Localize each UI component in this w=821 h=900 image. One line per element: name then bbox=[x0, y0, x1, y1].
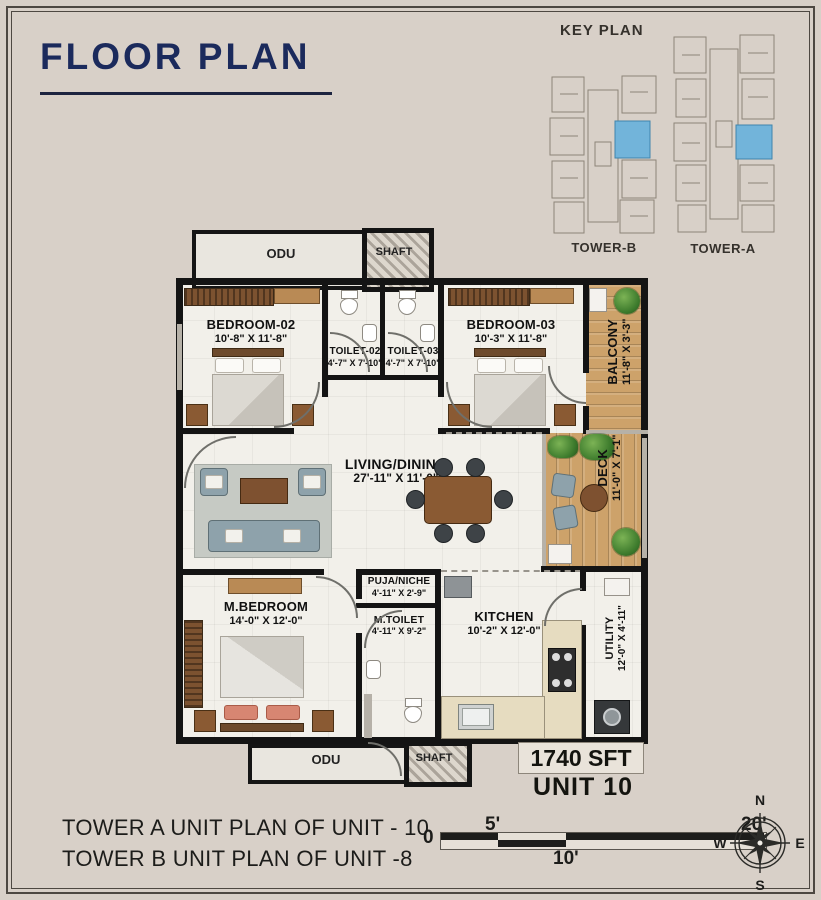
dresser bbox=[530, 288, 574, 304]
wall bbox=[176, 428, 294, 434]
room-label-puja: PUJA/NICHE 4'-11" X 2'-9" bbox=[364, 576, 434, 598]
wall bbox=[322, 285, 328, 397]
room-label-deck: DECK 11'-0" X 7'-1" bbox=[596, 420, 624, 516]
dining-chair bbox=[406, 490, 425, 509]
wall bbox=[356, 569, 441, 575]
dining-chair bbox=[466, 524, 485, 543]
wall bbox=[322, 375, 444, 380]
deck-sink bbox=[548, 544, 572, 564]
shaft-bottom-box bbox=[404, 741, 472, 787]
wardrobe bbox=[448, 288, 530, 306]
wall bbox=[438, 285, 444, 397]
open-boundary-dashed bbox=[441, 570, 581, 572]
window-glass bbox=[642, 438, 647, 558]
compass-e: E bbox=[795, 835, 804, 851]
scale-segment bbox=[441, 833, 498, 840]
kitchen-sink bbox=[458, 704, 494, 730]
scale-label-0: 0 bbox=[423, 827, 434, 849]
shower-partition bbox=[364, 694, 372, 738]
wall bbox=[356, 603, 441, 608]
coffee-table bbox=[240, 478, 288, 504]
toilet-wc bbox=[404, 698, 421, 722]
plan-captions: TOWER A UNIT PLAN OF UNIT - 10 TOWER B U… bbox=[62, 812, 429, 874]
title-underline bbox=[40, 92, 332, 95]
scale-segment bbox=[498, 840, 566, 847]
dining-chair bbox=[434, 524, 453, 543]
highlighted-unit-tower-b bbox=[615, 121, 650, 158]
plant bbox=[548, 436, 578, 458]
room-label-balcony: BALCONY 11'-8" X 3'-3" bbox=[606, 304, 634, 400]
toilet-wc bbox=[340, 290, 357, 314]
odu-bottom-label: ODU bbox=[286, 752, 366, 767]
nightstand bbox=[186, 404, 208, 426]
deck-chair bbox=[552, 504, 579, 531]
toilet-wc bbox=[398, 290, 415, 314]
stove bbox=[548, 648, 576, 692]
key-plan-tower-b bbox=[548, 72, 660, 243]
highlighted-unit-tower-a bbox=[736, 125, 772, 159]
armchair bbox=[298, 468, 326, 496]
odu-top-label: ODU bbox=[246, 246, 316, 261]
caption-line-2: TOWER B UNIT PLAN OF UNIT -8 bbox=[62, 843, 429, 874]
room-label-mbedroom: M.BEDROOM 14'-0" X 12'-0" bbox=[198, 600, 334, 628]
page-title: FLOOR PLAN bbox=[40, 36, 310, 78]
window-glass bbox=[177, 324, 182, 390]
nightstand bbox=[554, 404, 576, 426]
tower-a-label: TOWER-A bbox=[668, 241, 778, 256]
plant bbox=[612, 528, 640, 556]
wall bbox=[356, 569, 362, 599]
room-label-bedroom2: BEDROOM-02 10'-8" X 11'-8" bbox=[188, 318, 314, 346]
dresser bbox=[274, 288, 320, 304]
nightstand bbox=[312, 710, 334, 732]
compass-w: W bbox=[714, 835, 727, 851]
unit-number: UNIT 10 bbox=[518, 773, 648, 802]
dining-chair bbox=[466, 458, 485, 477]
unit-floor-plan: ODU SHAFT ODU SHAFT bbox=[176, 228, 656, 778]
wash-basin bbox=[420, 324, 435, 342]
wash-basin bbox=[362, 324, 377, 342]
key-plan-tower-a bbox=[672, 33, 776, 240]
shaft-bottom-label: SHAFT bbox=[406, 752, 462, 764]
room-label-utility: UTILITY 12'-0" X 4'-11" bbox=[604, 590, 628, 686]
refrigerator bbox=[444, 576, 472, 598]
sliding-door-glass bbox=[542, 434, 546, 567]
compass-s: S bbox=[755, 877, 764, 893]
shaft-top-label: SHAFT bbox=[364, 246, 424, 258]
wash-basin bbox=[366, 660, 381, 679]
sofa bbox=[208, 520, 320, 552]
wall bbox=[176, 278, 648, 285]
dining-chair bbox=[434, 458, 453, 477]
compass-rose: N S W E bbox=[714, 793, 806, 898]
dining-table bbox=[424, 476, 492, 524]
ac-unit bbox=[589, 288, 607, 312]
open-boundary-dashed bbox=[446, 432, 542, 434]
room-label-bedroom3: BEDROOM-03 10'-3" X 11'-8" bbox=[448, 318, 574, 346]
key-plan-title: KEY PLAN bbox=[560, 22, 644, 39]
scale-label-10: 10' bbox=[553, 848, 579, 870]
floor-plan-sheet: FLOOR PLAN KEY PLAN TOWER-B TOWER-A bbox=[0, 0, 821, 900]
compass-n: N bbox=[755, 793, 765, 808]
dresser bbox=[228, 578, 302, 594]
area-box: 1740 SFT bbox=[518, 742, 644, 774]
caption-line-1: TOWER A UNIT PLAN OF UNIT - 10 bbox=[62, 812, 429, 843]
bed bbox=[220, 636, 304, 732]
washing-machine bbox=[594, 700, 630, 734]
wall bbox=[356, 633, 362, 744]
dining-chair bbox=[494, 490, 513, 509]
nightstand bbox=[194, 710, 216, 732]
wall bbox=[176, 569, 324, 575]
deck-chair bbox=[551, 473, 577, 499]
wardrobe bbox=[184, 620, 203, 708]
area-value: 1740 SFT bbox=[531, 745, 632, 772]
wardrobe bbox=[184, 288, 274, 306]
